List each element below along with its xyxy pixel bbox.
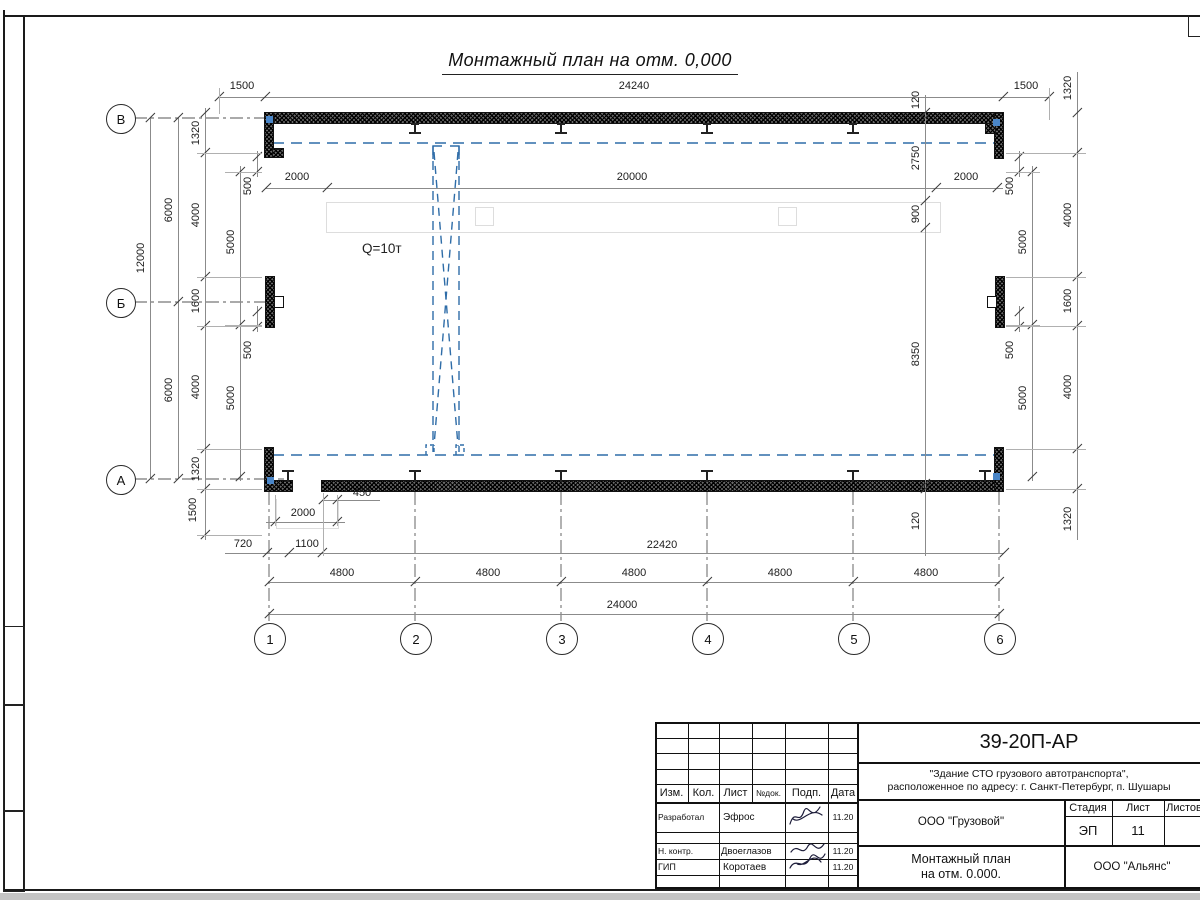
dim-label: 2750 — [910, 146, 922, 170]
axis-circle-row-Б: Б — [106, 288, 136, 318]
project-name: "Здание СТО грузового автотранспорта", р… — [858, 763, 1200, 798]
header-ndok: №док. — [752, 784, 785, 802]
axis-circle-column-3: 3 — [546, 623, 578, 655]
stage-label: Стадия — [1064, 799, 1112, 816]
axis-circle-column-6: 6 — [984, 623, 1016, 655]
signature-ncontrol-gip — [790, 844, 825, 868]
dim-label: 500 — [242, 177, 254, 195]
dim-label: 4800 — [330, 567, 354, 579]
name-developer: Эфрос — [723, 802, 783, 832]
dim-label: 1100 — [295, 538, 319, 550]
dim-label: 6000 — [163, 378, 175, 402]
dimension-line — [1077, 72, 1078, 540]
dim-label: 5000 — [1017, 230, 1029, 254]
dim-label: 5000 — [225, 230, 237, 254]
axis-circle-column-2: 2 — [400, 623, 432, 655]
dimension-line — [266, 522, 345, 523]
extension-line — [1006, 153, 1086, 154]
dim-label: 20000 — [617, 171, 648, 183]
extension-line — [275, 495, 276, 526]
extension-line — [219, 88, 220, 114]
dim-label: 1500 — [187, 498, 199, 522]
dim-label: 6000 — [163, 198, 175, 222]
column-ibeam-bottom — [706, 471, 708, 482]
extension-line — [225, 172, 262, 173]
extension-line — [1006, 277, 1086, 278]
dim-label: 4800 — [476, 567, 500, 579]
extension-line — [197, 153, 262, 154]
column-ibeam-bottom — [852, 471, 854, 482]
dimension-line — [265, 188, 1003, 189]
dim-label: 500 — [242, 341, 254, 359]
doc-number: 39-20П-АР — [858, 724, 1200, 760]
extension-line — [1006, 489, 1086, 490]
dim-label: 4000 — [190, 203, 202, 227]
header-kol: Кол. — [688, 784, 719, 802]
column-ibeam-top — [555, 132, 567, 134]
dim-label: 12000 — [135, 243, 147, 274]
project-name-line2: расположенное по адресу: г. Санкт-Петерб… — [888, 781, 1171, 794]
dim-label: 1600 — [1062, 289, 1074, 313]
column-ibeam-bottom — [414, 471, 416, 482]
drawing-name-cell: Монтажный план на отм. 0.000. — [858, 845, 1064, 889]
column-ibeam-top — [701, 132, 713, 134]
axis-circle-column-5: 5 — [838, 623, 870, 655]
sheet-value: 11 — [1112, 816, 1164, 845]
extension-line — [1006, 172, 1040, 173]
extension-line — [197, 489, 262, 490]
sheet-label: Лист — [1112, 799, 1164, 816]
extension-line — [197, 535, 262, 536]
dim-label: 4000 — [190, 375, 202, 399]
axis-circle-row-В: В — [106, 104, 136, 134]
header-izm: Изм. — [655, 784, 688, 802]
dimension-line — [269, 614, 999, 615]
drawing-sheet: Монтажный план на отм. 0,000 Q=10т — [0, 0, 1200, 900]
dim-label: 120 — [910, 512, 922, 530]
dim-label: 1500 — [230, 80, 254, 92]
extension-line — [197, 449, 262, 450]
axis-circle-column-1: 1 — [254, 623, 286, 655]
extension-line — [197, 277, 262, 278]
date-developer: 11.20 — [828, 802, 858, 832]
extension-line — [1006, 449, 1086, 450]
dim-label: 22420 — [647, 539, 678, 551]
role-developer: Разработал — [658, 802, 718, 832]
dim-label: 450 — [353, 487, 371, 499]
stage-value: ЭП — [1064, 816, 1112, 845]
axis-circle-row-А: А — [106, 465, 136, 495]
header-list: Лист — [719, 784, 752, 802]
dim-label: 4800 — [914, 567, 938, 579]
column-ibeam-bottom — [560, 471, 562, 482]
axis-circle-column-4: 4 — [692, 623, 724, 655]
dimension-line — [269, 582, 999, 583]
dim-label: 4000 — [1062, 203, 1074, 227]
dimension-line — [225, 553, 1004, 554]
dim-label: 2000 — [285, 171, 309, 183]
dim-label: 24240 — [619, 80, 650, 92]
date-gip: 11.20 — [828, 859, 858, 875]
dim-label: 500 — [1004, 177, 1016, 195]
column-ibeam-bottom — [287, 471, 289, 482]
date-ncontrol: 11.20 — [828, 843, 858, 859]
dim-label: 720 — [234, 538, 252, 550]
dim-label: 4800 — [622, 567, 646, 579]
name-gip: Коротаев — [723, 859, 783, 875]
extension-line — [225, 325, 262, 326]
drawing-name-line1: Монтажный план — [911, 852, 1011, 867]
project-name-line1: "Здание СТО грузового автотранспорта", — [929, 768, 1128, 781]
org-cell: ООО "Грузовой" — [858, 799, 1064, 845]
dimension-line — [323, 500, 380, 501]
column-ibeam-top — [847, 132, 859, 134]
extension-line — [1006, 326, 1086, 327]
drawing-name-line2: на отм. 0.000. — [921, 867, 1001, 882]
column-ibeam-top — [409, 132, 421, 134]
dim-label: 5000 — [1017, 386, 1029, 410]
extension-line — [323, 493, 324, 556]
dim-label: 1320 — [1062, 76, 1074, 100]
dim-label: 4000 — [1062, 375, 1074, 399]
name-ncontrol: Двоеглазов — [721, 843, 785, 859]
dim-label: 120 — [910, 91, 922, 109]
dim-label: 1600 — [190, 289, 202, 313]
column-ibeam-bottom — [984, 471, 986, 482]
dim-label: 2000 — [954, 171, 978, 183]
header-data: Дата — [828, 784, 858, 802]
dim-label: 500 — [1004, 341, 1016, 359]
sheets-label: Листов — [1164, 799, 1200, 816]
dim-label: 4800 — [768, 567, 792, 579]
dim-label: 1500 — [1014, 80, 1038, 92]
extension-line — [1049, 88, 1050, 120]
dim-label: 24000 — [607, 599, 638, 611]
role-ncontrol: Н. контр. — [658, 843, 718, 859]
extension-line — [197, 326, 262, 327]
dim-label: 2000 — [291, 507, 315, 519]
dim-label: 8350 — [910, 342, 922, 366]
dim-label: 1320 — [190, 121, 202, 145]
dimension-line — [150, 118, 151, 479]
dim-label: 1320 — [1062, 507, 1074, 531]
signature-developer — [790, 807, 822, 824]
extension-line — [1006, 325, 1040, 326]
dim-label: 5000 — [225, 386, 237, 410]
dim-label: 1320 — [190, 457, 202, 481]
company-cell: ООО "Альянс" — [1064, 845, 1200, 889]
signatures-svg — [786, 800, 828, 878]
dim-label: 900 — [910, 205, 922, 223]
extension-line — [337, 495, 338, 526]
role-gip: ГИП — [658, 859, 718, 875]
